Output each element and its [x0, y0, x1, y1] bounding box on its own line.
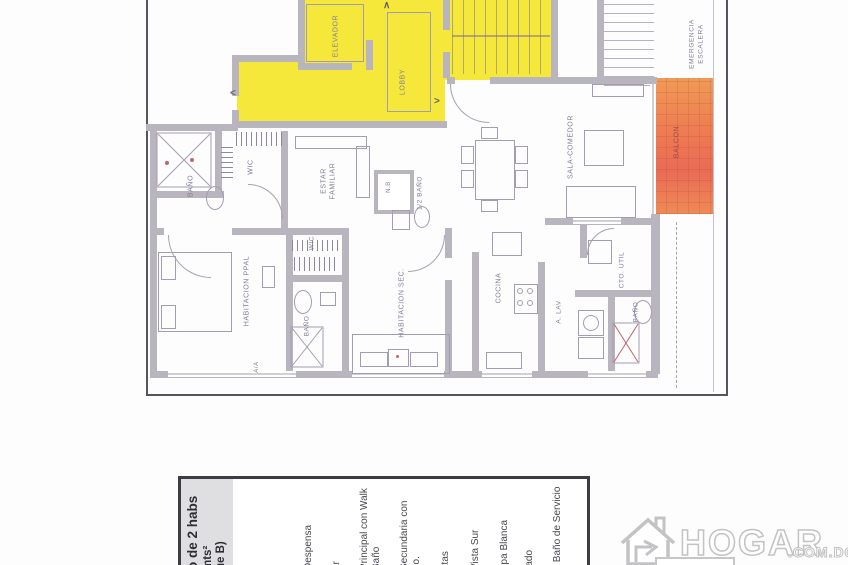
wall-segment [298, 0, 305, 70]
shower-fixture [156, 132, 212, 188]
burner [527, 300, 533, 306]
window [573, 218, 621, 224]
lobby-stairs [452, 0, 550, 74]
balcony-highlight [655, 78, 713, 214]
room-label-lobby: LOBBY [400, 69, 407, 95]
bedside-piece [388, 349, 409, 367]
toilet [206, 186, 224, 210]
chair [481, 200, 498, 212]
room-label-aa: A/A [254, 361, 260, 372]
wall-segment [490, 77, 657, 84]
wall-segment [443, 0, 450, 30]
wall-segment [232, 121, 447, 128]
utility-shaft-box [374, 170, 414, 214]
info-feature-fragment: opa Blanca [499, 520, 510, 565]
burner [517, 288, 523, 294]
room-label-hab-sec: HABITACION SEC. [399, 268, 406, 338]
window [482, 371, 532, 377]
info-feature-fragment: rado [524, 550, 535, 565]
wall-segment [472, 252, 479, 372]
info-title-fragment: mts² [202, 546, 214, 565]
closet-rod [221, 146, 233, 178]
wall-segment [580, 224, 587, 258]
lobby-stairs-divider [452, 35, 550, 37]
toilet [294, 290, 312, 314]
tv-unit [356, 146, 370, 198]
room-label-hab-ppal: HABITACION PPAL [244, 256, 251, 327]
closet-rod [236, 132, 282, 146]
room-label-elevador: ELEVADOR [333, 15, 340, 57]
washer-drum [583, 315, 599, 331]
room-label-estar2: FAMILIAR [330, 163, 337, 200]
wall-segment [232, 228, 349, 235]
fridge [492, 232, 522, 256]
wall-segment [342, 228, 349, 375]
info-feature-fragment: ño. [411, 556, 422, 565]
wall-segment [366, 40, 373, 70]
sofa [566, 186, 636, 218]
entry-chevron-right: > [434, 96, 440, 107]
pillow [360, 352, 388, 367]
laundry-tub [578, 337, 604, 359]
info-title-fragment: o de 2 habs [185, 496, 200, 565]
wall-segment [150, 228, 164, 235]
info-feature-fragment: Secundaria con [399, 501, 410, 565]
sink [392, 210, 410, 230]
balcony-window [650, 84, 656, 214]
info-title-fragment: ue B) [215, 541, 227, 565]
room-label-nb: N.B [386, 181, 392, 193]
wall-segment [575, 290, 658, 297]
pillow [410, 352, 438, 367]
watermark-suffix: .COM.DO [788, 544, 848, 560]
dining-table [475, 140, 515, 200]
wall-segment [551, 0, 558, 84]
accent-dot [396, 355, 399, 358]
terrace-edge-line [713, 0, 714, 392]
window [588, 371, 646, 377]
info-feature-fragment: atas [440, 551, 451, 565]
window [168, 371, 296, 377]
info-feature-fragment: Vista Sur [470, 530, 481, 565]
sink [320, 292, 336, 306]
room-label-escalera: ESCALERA [698, 24, 705, 63]
burner [527, 288, 533, 294]
wall-segment [281, 131, 288, 235]
room-label-cocina: COCINA [496, 273, 503, 304]
kitchen-sink [486, 352, 522, 369]
wall-segment [538, 262, 545, 372]
nightstand [262, 266, 275, 288]
burner [517, 300, 523, 306]
utility-shelf [588, 240, 612, 264]
room-label-sala: SALA-COMEDOR [568, 115, 575, 179]
wall-segment [286, 275, 346, 282]
room-label-emergencia: EMERGENCIA [689, 19, 696, 69]
chair [461, 146, 474, 164]
setback-dashed-line [676, 222, 677, 388]
wall-segment [443, 52, 450, 78]
room-label-bano-serv: BAÑO [633, 302, 640, 323]
room-label-wic1: WIC [248, 159, 255, 174]
entry-chevron-left: < [230, 88, 236, 99]
wall-segment [445, 228, 452, 258]
emergency-stairs [604, 2, 654, 86]
watermark-box [655, 557, 735, 565]
wall-segment [597, 0, 604, 84]
room-label-alav: A. LAV [556, 300, 563, 323]
pillow [161, 256, 176, 280]
info-feature-fragment: ar [331, 561, 342, 565]
info-feature-fragment: Despensa [303, 525, 314, 565]
wall-segment [146, 124, 238, 131]
info-feature-fragment: Principal con Walk [359, 488, 370, 565]
closet-rod [294, 257, 336, 271]
room-label-medio-bano: 1/2 BAÑO [417, 176, 424, 210]
stairs-chevron-up: ∧ [383, 0, 390, 11]
floor-plan-page: < > ∧ [0, 0, 848, 565]
chair [515, 146, 528, 164]
room-label-balcon: BALCON [674, 126, 681, 158]
lobby-rug [387, 12, 431, 112]
chair [515, 170, 528, 188]
wall-segment [447, 77, 455, 84]
chair [461, 170, 474, 188]
room-label-estar1: ESTAR [321, 168, 328, 194]
chair [481, 127, 498, 139]
info-feature-fragment: y Baño de Servicio [552, 487, 563, 565]
pillow [161, 305, 176, 329]
console-table [592, 84, 644, 97]
info-feature-fragment: Baño [371, 547, 382, 565]
room-label-wic2: WIC [309, 236, 316, 250]
room-label-bano-publico: BAÑO [188, 175, 195, 197]
wall-segment [298, 63, 352, 70]
room-label-bano-ppal: BAÑO [304, 316, 311, 337]
armchair [584, 130, 624, 166]
wall-segment [232, 55, 304, 62]
shower-fixture [612, 322, 640, 364]
room-label-cto-util: CTO. UTIL [619, 252, 626, 289]
